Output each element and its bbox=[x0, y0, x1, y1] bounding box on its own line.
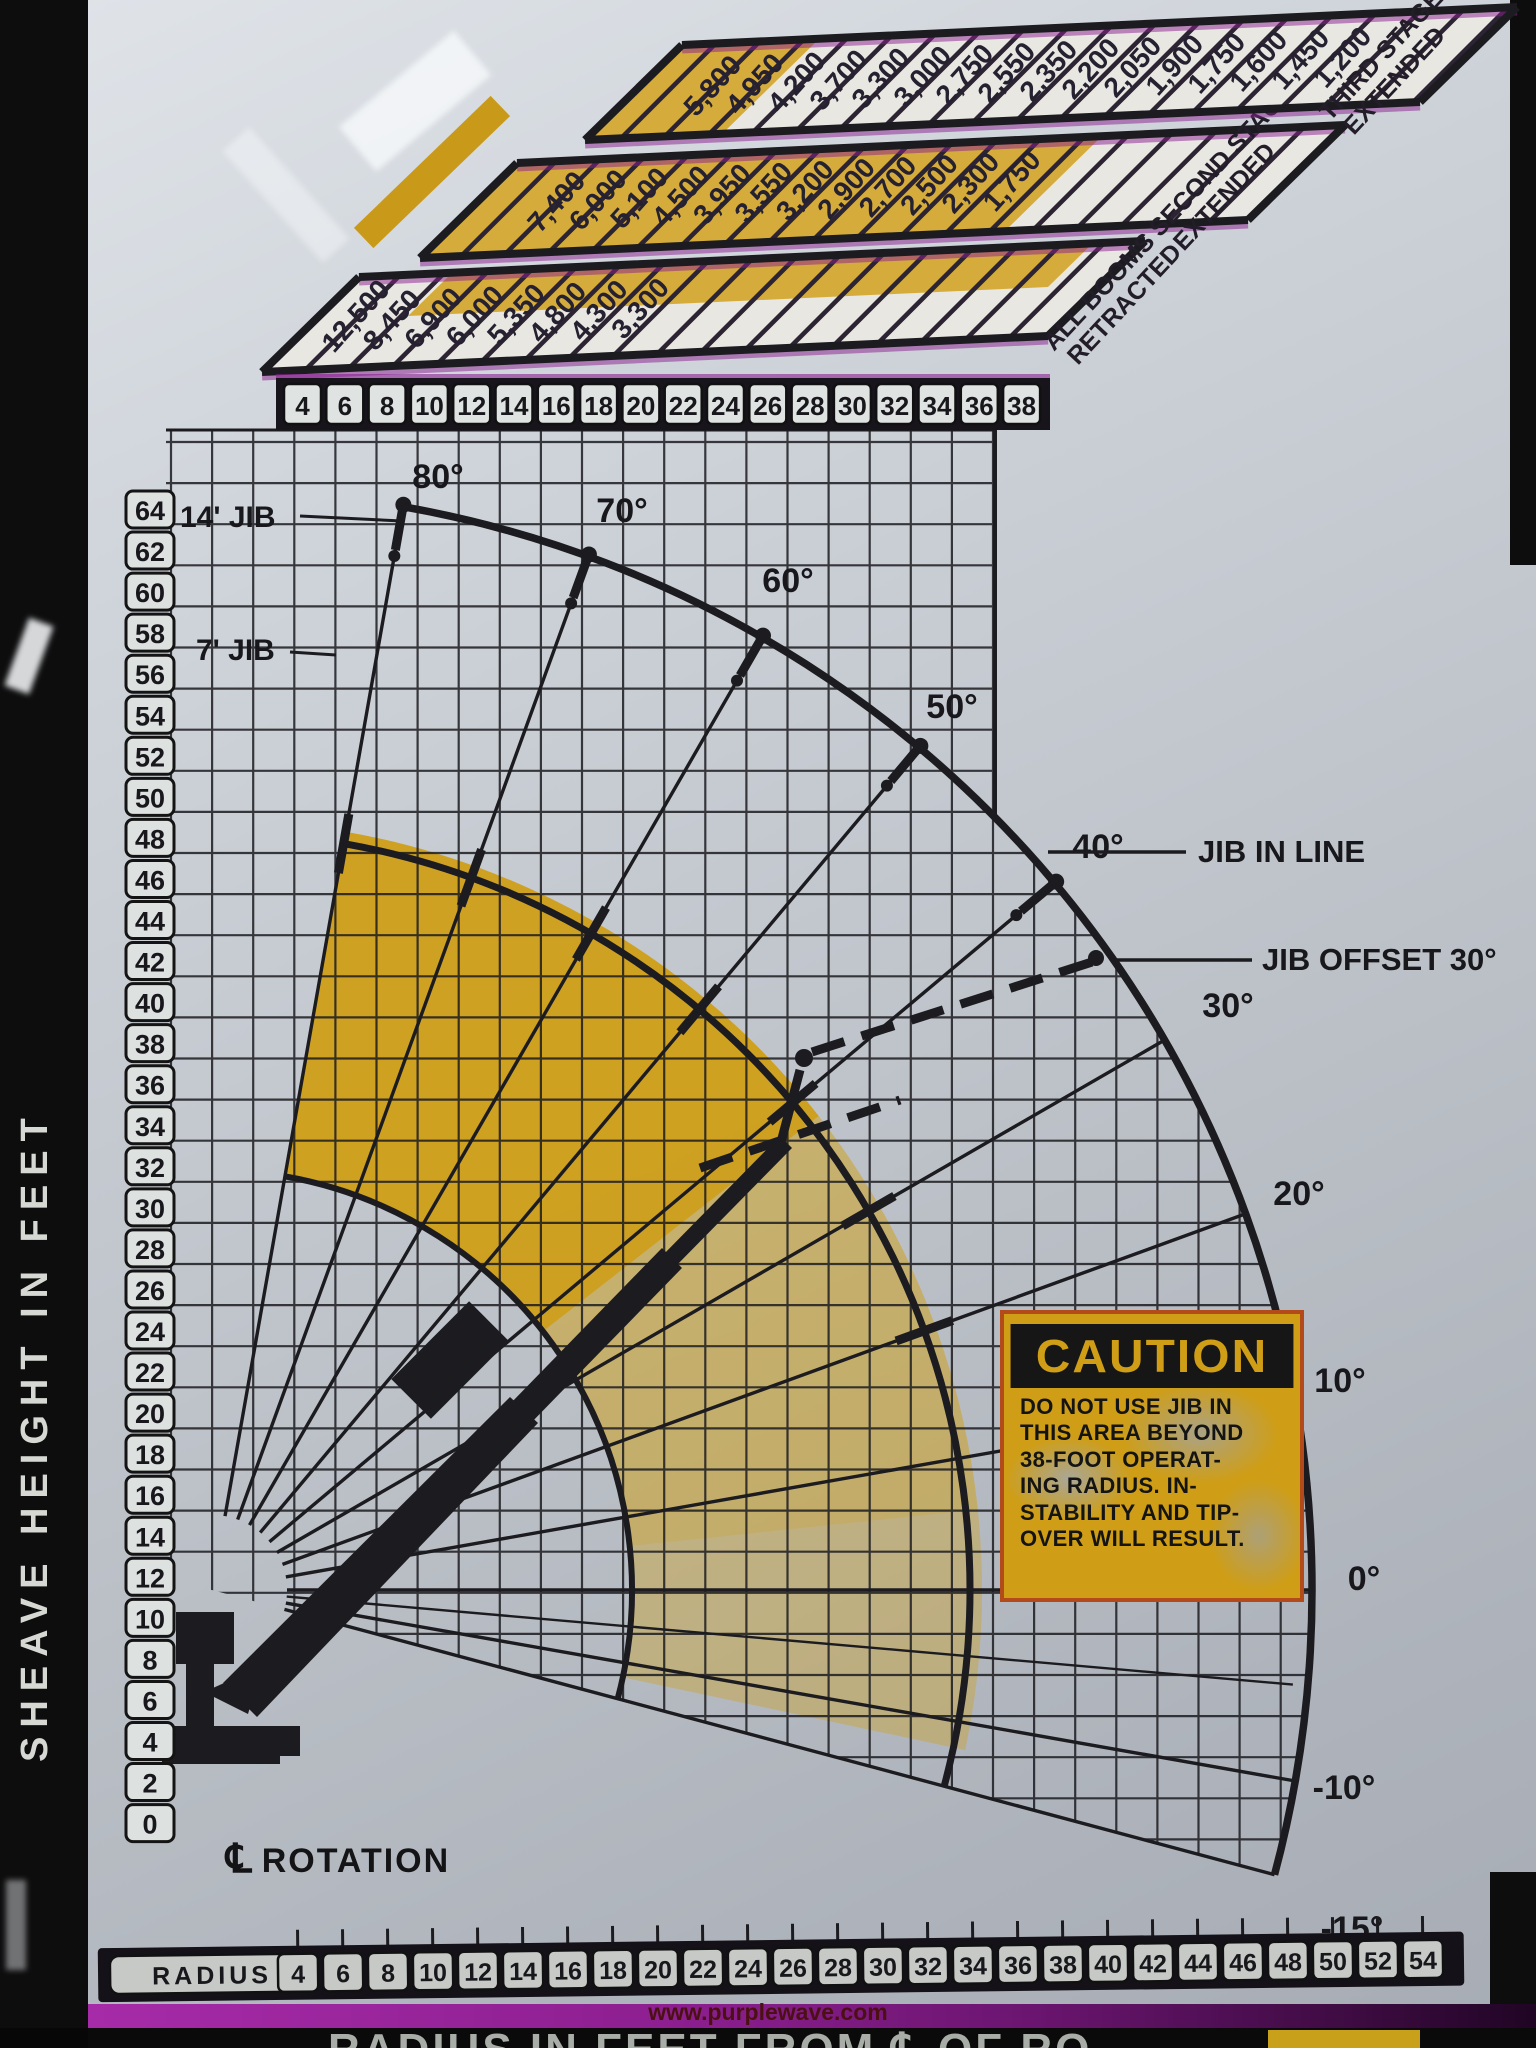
jib-sheave-dot bbox=[565, 597, 577, 609]
radius-header-label: 8 bbox=[380, 391, 394, 421]
height-tick-label: 4 bbox=[142, 1728, 157, 1758]
radius-header-label: 28 bbox=[796, 391, 825, 421]
jib-sheave-dot bbox=[731, 675, 743, 687]
radius-tick-label: 46 bbox=[1229, 1949, 1257, 1977]
radius-tick-label: 10 bbox=[419, 1959, 447, 1987]
height-tick-label: 0 bbox=[142, 1810, 157, 1840]
height-tick-label: 34 bbox=[135, 1112, 165, 1142]
jib-in-line-label: JIB IN LINE bbox=[1198, 834, 1365, 869]
jib-offset-label: JIB OFFSET 30° bbox=[1262, 942, 1497, 977]
radius-header-label: 6 bbox=[338, 391, 352, 421]
height-tick-label: 58 bbox=[135, 619, 165, 649]
footer-gold-patch bbox=[1268, 2030, 1420, 2048]
jib-sheave-dot bbox=[1088, 950, 1104, 966]
angle-label: 40° bbox=[1072, 828, 1123, 866]
height-tick-label: 2 bbox=[142, 1769, 157, 1799]
height-tick-label: 22 bbox=[135, 1358, 165, 1388]
radius-tick-label: 16 bbox=[554, 1957, 582, 1985]
angle-label: 60° bbox=[762, 562, 813, 600]
height-tick-label: 62 bbox=[135, 537, 165, 567]
height-tick-label: 38 bbox=[135, 1030, 165, 1060]
jib-sheave-dot bbox=[1010, 909, 1022, 921]
caution-title: CAUTION bbox=[1011, 1324, 1294, 1388]
radius-tick-label: 36 bbox=[1004, 1952, 1032, 1980]
height-tick-label: 52 bbox=[135, 742, 165, 772]
radius-header-label: 32 bbox=[880, 391, 909, 421]
capacity-band: 5,8004,9504,2003,7003,3003,0002,7502,550… bbox=[585, 0, 1517, 145]
height-tick-label: 16 bbox=[135, 1481, 165, 1511]
radius-tick-label: 12 bbox=[464, 1958, 492, 1986]
radius-axis-label: RADIUS bbox=[152, 1961, 272, 1990]
range-diagram-svg: 6462605856545250484644424038363432302826… bbox=[0, 0, 1536, 2048]
radius-tick-label: 30 bbox=[869, 1953, 897, 1981]
radius-tick-label: 4 bbox=[291, 1961, 305, 1989]
radius-tick-label: 28 bbox=[824, 1954, 852, 1982]
radius-header-label: 26 bbox=[753, 391, 782, 421]
boom-section-block bbox=[391, 1301, 508, 1418]
height-tick-label: 24 bbox=[135, 1317, 165, 1347]
height-tick-label: 12 bbox=[135, 1563, 165, 1593]
height-tick-label: 20 bbox=[135, 1399, 165, 1429]
centerline-of-rotation-label: ℄ROTATION bbox=[226, 1836, 450, 1882]
crane-mast bbox=[186, 1660, 214, 1730]
height-tick-label: 32 bbox=[135, 1153, 165, 1183]
radius-tick-label: 8 bbox=[381, 1960, 395, 1988]
radius-header-label: 18 bbox=[584, 391, 613, 421]
watermark-text: www.purplewave.com bbox=[0, 1999, 1536, 2026]
radius-header-label: 30 bbox=[838, 391, 867, 421]
jib-7-tick bbox=[290, 652, 336, 655]
crane-base-skirt bbox=[162, 1752, 280, 1764]
height-tick-label: 46 bbox=[135, 865, 165, 895]
radius-tick-label: 48 bbox=[1274, 1949, 1302, 1977]
radius-tick-label: 50 bbox=[1319, 1948, 1347, 1976]
radius-tick-label: 38 bbox=[1049, 1951, 1077, 1979]
radius-tick-label: 22 bbox=[689, 1956, 717, 1984]
capacity-bands: 12,5008,4506,9006,0005,3504,8004,3003,30… bbox=[262, 0, 1517, 375]
height-tick-label: 64 bbox=[135, 496, 165, 526]
caution-sticker: CAUTION DO NOT USE JIB IN THIS AREA BEYO… bbox=[1000, 1310, 1304, 1602]
height-tick-label: 42 bbox=[135, 948, 165, 978]
height-tick-label: 36 bbox=[135, 1071, 165, 1101]
radius-header-strip: 468101214161820222426283032343638 bbox=[276, 376, 1050, 430]
radius-header-label: 10 bbox=[415, 391, 444, 421]
radius-header-label: 16 bbox=[542, 391, 571, 421]
radius-tick-label: 52 bbox=[1364, 1947, 1392, 1975]
height-tick-label: 18 bbox=[135, 1440, 165, 1470]
angle-label: 30° bbox=[1202, 987, 1253, 1025]
height-tick-label: 60 bbox=[135, 578, 165, 608]
crane-load-chart-photo: SHEAVE HEIGHT IN FEET 646260585654525048… bbox=[0, 0, 1536, 2048]
height-tick-label: 50 bbox=[135, 783, 165, 813]
radius-header-label: 36 bbox=[965, 391, 994, 421]
angle-label: 20° bbox=[1273, 1175, 1324, 1213]
jib-tip-bar bbox=[395, 511, 402, 550]
jib-7-label: 7' JIB bbox=[196, 634, 275, 667]
radius-header-label: 34 bbox=[923, 391, 952, 421]
height-tick-label: 26 bbox=[135, 1276, 165, 1306]
height-tick-label: 44 bbox=[135, 907, 165, 937]
boom-jib-sheave bbox=[795, 1049, 813, 1067]
height-tick-label: 40 bbox=[135, 989, 165, 1019]
jib-tip-bar bbox=[891, 750, 917, 781]
jib-tip-bar bbox=[740, 641, 760, 676]
height-tick-label: 56 bbox=[135, 660, 165, 690]
radius-tick-label: 24 bbox=[734, 1955, 762, 1983]
radius-tick-label: 26 bbox=[779, 1955, 807, 1983]
jib-tip-bar bbox=[1021, 886, 1052, 912]
angle-label: 50° bbox=[926, 688, 977, 726]
radius-header-label: 14 bbox=[500, 391, 529, 421]
centerline-symbol: ℄ bbox=[226, 1837, 254, 1881]
radius-header-label: 20 bbox=[626, 391, 655, 421]
radius-tick-label: 20 bbox=[644, 1956, 672, 1984]
height-tick-label: 10 bbox=[135, 1604, 165, 1634]
radius-tick-label: 14 bbox=[509, 1958, 537, 1986]
height-tick-label: 28 bbox=[135, 1235, 165, 1265]
angle-label: 80° bbox=[412, 458, 463, 496]
height-tick-label: 8 bbox=[142, 1645, 157, 1675]
radius-header-label: 24 bbox=[711, 391, 740, 421]
height-axis: 6462605856545250484644424038363432302826… bbox=[126, 491, 174, 1842]
height-tick-label: 30 bbox=[135, 1194, 165, 1224]
boom-base-section bbox=[223, 1397, 538, 1717]
radius-tick-label: 44 bbox=[1184, 1950, 1212, 1978]
jib-14-tick bbox=[300, 516, 402, 521]
bottom-radius-strip: RADIUS4681012141618202224262830323436384… bbox=[98, 1916, 1465, 2003]
caution-text: DO NOT USE JIB IN THIS AREA BEYOND 38-FO… bbox=[1020, 1394, 1284, 1552]
radius-tick-label: 34 bbox=[959, 1952, 987, 1980]
radius-header-label: 12 bbox=[457, 391, 486, 421]
height-tick-label: 54 bbox=[135, 701, 165, 731]
crane-mast-top bbox=[176, 1612, 234, 1664]
angle-label: -10° bbox=[1313, 1769, 1376, 1807]
height-tick-label: 48 bbox=[135, 824, 165, 854]
radius-header-label: 22 bbox=[669, 391, 698, 421]
radius-tick-label: 54 bbox=[1409, 1947, 1437, 1975]
height-tick-label: 14 bbox=[135, 1522, 165, 1552]
radius-tick-label: 32 bbox=[914, 1953, 942, 1981]
angle-label: 70° bbox=[596, 492, 647, 530]
radius-tick-label: 18 bbox=[599, 1957, 627, 1985]
jib-14-label: 14' JIB bbox=[180, 501, 276, 534]
jib-sheave-dot bbox=[388, 550, 400, 562]
angle-label: 0° bbox=[1348, 1560, 1381, 1598]
radius-header-label: 38 bbox=[1007, 391, 1036, 421]
radius-tick-label: 6 bbox=[336, 1960, 350, 1988]
radius-tick-label: 42 bbox=[1139, 1950, 1167, 1978]
radius-header-label: 4 bbox=[295, 391, 310, 421]
jib-sheave-dot bbox=[881, 780, 893, 792]
radius-tick-label: 40 bbox=[1094, 1951, 1122, 1979]
angle-label: 10° bbox=[1314, 1362, 1365, 1400]
height-tick-label: 6 bbox=[142, 1686, 157, 1716]
